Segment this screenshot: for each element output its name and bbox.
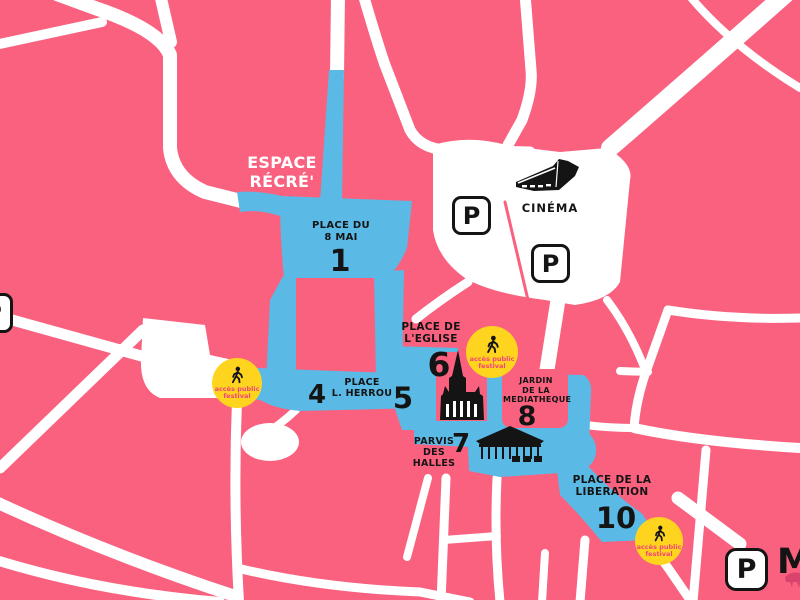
place-du-8-mai-label: PLACE DU 8 MAI xyxy=(298,220,384,243)
access-badge-label: accès public festival xyxy=(637,544,682,558)
place-number-5: 5 xyxy=(389,381,417,415)
espace-recre-label: ESPACE RÉCRÉ' xyxy=(235,153,329,191)
map-canvas xyxy=(0,0,800,600)
place-number-4: 4 xyxy=(303,380,331,410)
cinema-building-icon xyxy=(514,159,582,193)
parking-icon: P xyxy=(725,548,768,591)
walking-person-icon xyxy=(227,366,247,386)
access-badge: accès public festival xyxy=(212,358,262,408)
walking-person-icon xyxy=(650,525,669,544)
cinema-label: CINÉMA xyxy=(516,202,584,214)
place-number-7: 7 xyxy=(448,429,474,459)
access-badge-label: accès public festival xyxy=(215,386,260,400)
parking-icon: P xyxy=(531,244,570,283)
place-number-1: 1 xyxy=(322,244,358,279)
place-number-10: 10 xyxy=(593,501,639,535)
parking-icon: P xyxy=(0,293,13,333)
place-de-l-eglise-label: PLACE DE L'EGLISE xyxy=(390,321,472,345)
festival-town-map: ESPACE RÉCRÉ' PLACE DU 8 MAI 1 CINÉMA PL… xyxy=(0,0,800,600)
piano-icon xyxy=(783,570,800,590)
church-icon xyxy=(437,350,487,421)
parking-icon: P xyxy=(452,196,491,235)
place-de-la-liberation-label: PLACE DE LA LIBERATION xyxy=(570,474,654,498)
place-l-herrou-label: PLACE L. HERROU xyxy=(328,377,396,399)
market-hall-icon xyxy=(474,424,546,465)
access-badge: accès public festival xyxy=(635,517,683,565)
